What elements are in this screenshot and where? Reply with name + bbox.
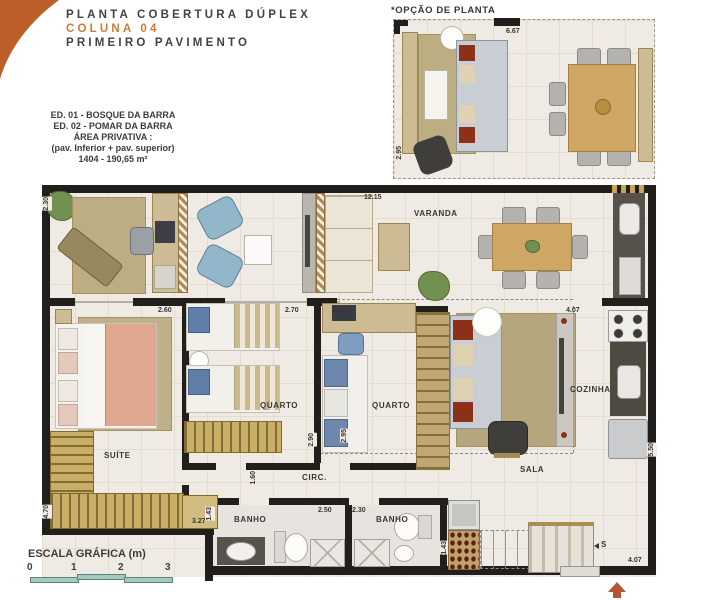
- sala-decor-dot: [561, 318, 567, 324]
- wall-bottom-b: [598, 566, 656, 575]
- plant-varanda: [418, 271, 450, 301]
- option-plan-title: *OPÇÃO DE PLANTA: [391, 5, 495, 16]
- wine-cabinet-top: [448, 500, 480, 530]
- q1-bed1-pillow: [188, 307, 210, 333]
- sala-pillow-cream2: [453, 378, 473, 400]
- q1-bed2-pillow: [188, 369, 210, 395]
- b2-basin: [394, 545, 414, 562]
- b1-sink-counter: [217, 537, 265, 565]
- q1-bed1: [186, 303, 280, 351]
- wine-rack: [448, 530, 480, 570]
- room-label-varanda: VARANDA: [414, 209, 458, 218]
- info-building1: ED. 01 - BOSQUE DA BARRA: [38, 110, 188, 121]
- entry-door: [560, 566, 600, 577]
- varanda-chair: [536, 271, 560, 289]
- varanda-chair: [502, 271, 526, 289]
- sala-lamp-table: [472, 307, 502, 337]
- suite-pillow: [58, 352, 78, 374]
- stairs-label: S: [601, 540, 606, 549]
- q1-wardrobe: [184, 421, 282, 453]
- wall-circ-b: [246, 463, 320, 470]
- kitchen-sink: [617, 365, 641, 399]
- scale-tick-3: 3: [165, 562, 171, 573]
- option-dining-chair: [549, 112, 566, 136]
- entry-arrow-stem: [613, 592, 621, 598]
- wall-mid-d: [602, 298, 648, 306]
- plan-floor-name: PRIMEIRO PAVIMENTO: [66, 37, 311, 49]
- suite-closet-horizontal: [50, 493, 184, 529]
- option-sideboard-right: [638, 48, 653, 162]
- dim-suite-width: 2.60: [158, 307, 172, 315]
- wall-circ-a: [182, 463, 216, 470]
- option-wall-segment: [494, 18, 520, 26]
- option-table-centerpiece: [595, 99, 611, 115]
- wall-left: [42, 185, 50, 535]
- scale-bar-seg3: [124, 577, 173, 583]
- armchair-blue-2: [194, 242, 245, 291]
- grill-sink: [619, 203, 640, 235]
- lounge-side-table: [244, 235, 272, 265]
- sala-tv-screen: [559, 338, 564, 414]
- room-label-banho1: BANHO: [234, 515, 266, 524]
- grill-cabinet: [619, 257, 641, 295]
- suite-blanket: [105, 324, 156, 426]
- option-dim-width: 6.67: [506, 28, 520, 36]
- sala-armchair: [488, 421, 528, 455]
- info-building2: ED. 02 - POMAR DA BARRA: [38, 121, 188, 132]
- sala-tv-panel: [556, 313, 574, 447]
- dim-circ-width: 1.60: [250, 471, 258, 485]
- fridge: [608, 419, 648, 459]
- q1-bed1-blanket: [234, 304, 279, 348]
- room-label-quarto2: QUARTO: [372, 401, 410, 410]
- q2-cushion-white: [324, 389, 348, 417]
- hatch-column-1: [178, 193, 188, 293]
- option-tv-cabinet: [424, 70, 448, 120]
- dim-top-width: 12.15: [364, 194, 382, 202]
- option-pillow-red2: [459, 127, 475, 143]
- room-label-quarto1: QUARTO: [260, 401, 298, 410]
- dim-sala-width: 4.07: [566, 307, 580, 315]
- option-pillow-cream2: [459, 105, 475, 123]
- suite-pillow: [58, 404, 78, 426]
- option-sofa: [456, 40, 508, 152]
- stairs-dashed: [480, 530, 530, 569]
- b1-shower: [310, 539, 345, 567]
- room-label-cozinha: COZINHA: [570, 385, 611, 394]
- wall-banho-top-b: [269, 498, 349, 505]
- option-sideboard-left: [402, 32, 418, 154]
- option-dining-table: [568, 64, 636, 152]
- wall-top: [42, 185, 656, 193]
- main-plan: VARANDA 12.15 2.30 SUÍTE 2.60 4.70 3.27: [42, 185, 656, 577]
- info-area-value: 1404 - 190,65 m²: [38, 154, 188, 165]
- dim-quarto2-height: 2.95: [340, 429, 350, 443]
- q2-chair: [338, 333, 364, 355]
- scale-bar-seg1: [30, 577, 79, 583]
- page-title-block: PLANTA COBERTURA DÚPLEX COLUNA 04 PRIMEI…: [66, 9, 311, 49]
- info-area-note: (pav. Inferior + pav. superior): [38, 143, 188, 154]
- dim-closet-height: 4.70: [42, 505, 52, 519]
- option-plan-box: 6.67 2.95: [393, 19, 655, 179]
- q2-cushion-blue: [324, 359, 348, 387]
- varanda-chair: [572, 235, 588, 259]
- dim-banho1-height: 1.43: [205, 507, 215, 521]
- corner-accent-shape: [0, 0, 62, 82]
- dim-entry-width: 4.07: [628, 557, 642, 565]
- option-corner-mark2: [394, 20, 400, 34]
- plan-column: COLUNA 04: [66, 23, 311, 35]
- scale-title: ESCALA GRÁFICA (m): [28, 548, 146, 560]
- dim-closet-width: 3.27: [192, 518, 206, 526]
- suite-bed: [55, 323, 157, 429]
- building-info: ED. 01 - BOSQUE DA BARRA ED. 02 - POMAR …: [38, 110, 188, 165]
- floor-plan-page: PLANTA COBERTURA DÚPLEX COLUNA 04 PRIMEI…: [0, 0, 701, 600]
- scale-bar-seg2: [77, 574, 126, 580]
- hatch-column-2: [316, 193, 325, 293]
- option-pillow-red1: [459, 45, 475, 61]
- b2-toilet-tank: [418, 515, 432, 539]
- grill-vents: [612, 185, 646, 193]
- armchair-blue-1: [194, 194, 245, 243]
- table-plant: [525, 240, 540, 253]
- info-area-label: ÁREA PRIVATIVA :: [38, 132, 188, 143]
- option-region-top-dashed: [337, 299, 573, 300]
- sala-decor-dot2: [561, 432, 567, 438]
- sala-armchair-base: [494, 453, 520, 458]
- desk-books: [154, 265, 176, 289]
- scale-tick-1: 1: [71, 562, 77, 573]
- option-pillow-cream1: [459, 65, 475, 83]
- wall-mid-a: [50, 298, 75, 306]
- varanda-dining-table: [492, 223, 572, 271]
- plan-title: PLANTA COBERTURA DÚPLEX: [66, 9, 311, 21]
- wall-right: [648, 185, 656, 575]
- dim-banho2-width: 2.30: [352, 507, 366, 515]
- desk-chair: [130, 227, 154, 255]
- room-label-sala: SALA: [520, 465, 544, 474]
- scale-tick-0: 0: [27, 562, 33, 573]
- scale-tick-2: 2: [118, 562, 124, 573]
- b1-toilet-bowl: [284, 533, 308, 562]
- sofa-lounge: [325, 195, 373, 293]
- dim-banho1-width: 2.50: [318, 507, 332, 515]
- entry-arrow-icon: [608, 582, 626, 592]
- tv-screen: [305, 215, 310, 267]
- sala-pillow-red2: [453, 402, 473, 422]
- dim-quarto2-width: 2.60: [332, 307, 346, 315]
- b1-basin: [226, 542, 256, 561]
- varanda-sideboard: [378, 223, 410, 271]
- dim-cozinha-height: 5.50: [647, 443, 657, 457]
- room-label-circ: CIRC.: [302, 473, 327, 482]
- b2-shower: [354, 539, 390, 567]
- suite-pillow: [58, 380, 78, 402]
- dim-left-height: 2.30: [42, 197, 52, 211]
- suite-pillow: [58, 328, 78, 350]
- room-label-banho2: BANHO: [376, 515, 408, 524]
- dim-quarto1-width: 2.70: [285, 307, 299, 315]
- stove-cooktop: [608, 310, 648, 342]
- wall-banho-top-c: [379, 498, 448, 505]
- sala-pillow-red1: [453, 320, 473, 340]
- wall-banho2-right: [440, 498, 447, 575]
- option-dining-chair: [549, 82, 566, 106]
- suite-nightstand: [55, 309, 72, 324]
- dim-quarto1-height: 2.90: [307, 433, 317, 447]
- desk-computer: [155, 221, 175, 243]
- room-label-suite: SUÍTE: [104, 451, 131, 460]
- stairs-up-icon: [594, 543, 599, 549]
- shelf-unit: [416, 312, 450, 470]
- sala-pillow-cream1: [453, 344, 473, 366]
- wall-banhos-mid: [345, 505, 352, 575]
